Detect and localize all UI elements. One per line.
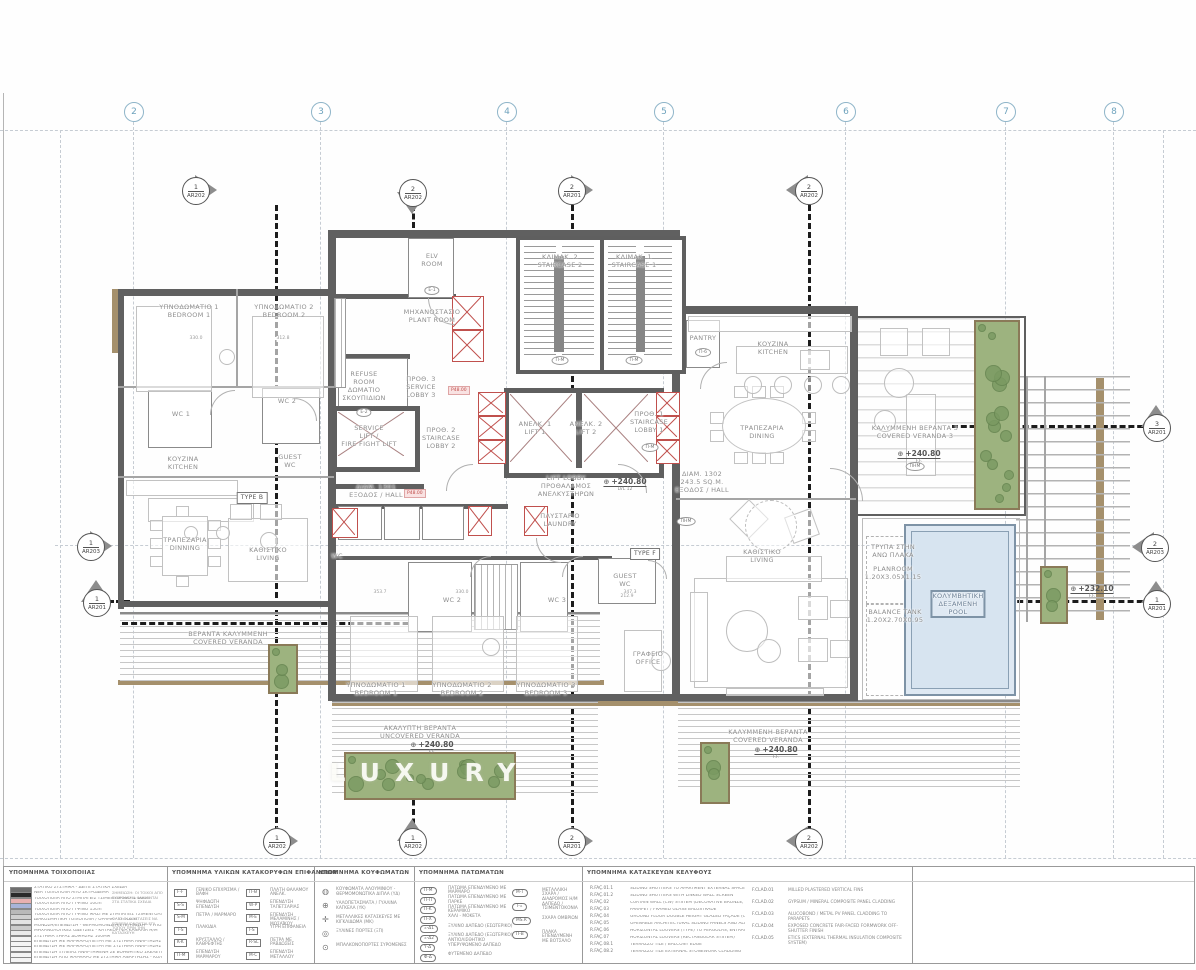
furniture bbox=[880, 328, 908, 356]
door-arc bbox=[648, 560, 667, 579]
opening-symbol-icon: ◍ bbox=[322, 887, 329, 896]
room-label-line: WC 2 bbox=[278, 397, 296, 405]
legend-code: I-S bbox=[246, 927, 258, 935]
room-label-line: ΜΗΧΑΝΟΣΤΑΣΙΟ bbox=[404, 308, 461, 316]
room-label-line: FIRE FIGHT LIFT bbox=[341, 440, 397, 448]
legend-code: T-Ξ bbox=[512, 903, 527, 911]
room-label-line: ΚΟΛΥΜΒΗΤΙΚΗ bbox=[932, 592, 983, 600]
plant-icon bbox=[1044, 570, 1052, 578]
legend-note: ΟΛΕΣ ΟΙ ΔΙΑΣΤΑΣΕΙΣ ΝΑ ΕΠΙΒΕΒΑΙΩΝΟΝΤΑΙ ΕΠ… bbox=[112, 917, 164, 935]
plant-icon bbox=[276, 664, 288, 676]
room-label-line: DINNING bbox=[163, 544, 207, 552]
room-label: ELVROOM bbox=[421, 252, 443, 268]
grid-bubble-6: 6 bbox=[836, 102, 856, 122]
room-label-line: ΥΠΝΟΔΩΜΑΤΙΟ 2 bbox=[432, 681, 491, 689]
room-label-line: BALANCE TANK bbox=[867, 608, 924, 616]
legend-title: ΥΠΟΜΝΗΜΑ ΥΛΙΚΩΝ ΚΑΤΑΚΟΡΥΦΩΝ ΕΠΙΦΑΝΕΙΩΝ bbox=[172, 870, 337, 876]
chair bbox=[150, 520, 163, 531]
elevation-marker: ⊕+240.80F.F. bbox=[897, 449, 940, 464]
dimension-text: 353.7 bbox=[374, 590, 387, 596]
room-label-line: ROOM bbox=[421, 260, 443, 268]
room-label-line: ΚΑΛΥΜΜΕΝΗ ΒΕΡΑΝΤΑ 3 bbox=[872, 424, 958, 432]
room-label: ΚΟΥΖΙΝΑKITCHEN bbox=[167, 455, 198, 471]
grid-bubble-3: 3 bbox=[311, 102, 331, 122]
chair bbox=[208, 556, 221, 567]
section-number: 2 bbox=[801, 834, 817, 843]
furniture-circle bbox=[757, 639, 781, 663]
room-label-line: ΚΛΙΜΑΚ. 2 bbox=[538, 253, 583, 261]
section-sheet: AR202 bbox=[404, 843, 422, 851]
section-marker-circle: 2AR201 bbox=[558, 177, 586, 205]
elevation-marker: ⊕+240.80F.F. bbox=[410, 740, 453, 755]
legend-code-text: F.CLAD.05 bbox=[752, 937, 786, 942]
room-label: PANTRY bbox=[690, 334, 717, 342]
legend-row-text: ΥΓΡΗ ΕΠΙΦΑΝΕΙΑ bbox=[270, 926, 312, 931]
chair bbox=[150, 556, 163, 567]
room-label-line: ΚΑΘΙΣΤΙΚΟ bbox=[249, 546, 287, 554]
duct-x-icon bbox=[479, 393, 503, 413]
elevation-marker: ⊕+240.80F.F. bbox=[754, 745, 797, 760]
room-label-line: ΑΝΕΛΚΥΣΤΗΡΩΝ bbox=[538, 490, 594, 498]
legend-code-text: R.FAÇ.07 bbox=[590, 936, 626, 941]
room-label: ΠΡΟΘ. 1STAIRCASELOBBY 1 bbox=[630, 410, 668, 434]
section-number: 1 bbox=[83, 539, 99, 548]
legend-row-text: ΥΑΛΟΠΕΤΑΣΜΑΤΑ / ΓΥΑΛΙΝΑ ΚΑΓΚΕΛΑ (ΥΚ) bbox=[336, 902, 408, 912]
room-label-line: ΚΛΙΜΑΚ. 1 bbox=[612, 253, 657, 261]
legend-code: Π-Β bbox=[512, 931, 528, 939]
room-label-line: ΤΡΥΠΑ ΣΤΗΝ bbox=[871, 543, 915, 551]
wall bbox=[328, 609, 336, 701]
furniture bbox=[830, 600, 850, 618]
legend-row-text: ΜΠΑΛΚΟΝΟΠΟΡΤΕΣ ΣΥΡΟΜΕΝΕΣ bbox=[336, 944, 408, 949]
elevation-value: ⊕+240.80 bbox=[603, 477, 646, 487]
legend-row-text: ΕΠΕΝΔΥΣΗ ΜΑΡΜΑΡΟΥ bbox=[196, 951, 244, 961]
legend-row-text: TERRAZZO TILE EXTERNAL STONEWORK CLADDIN… bbox=[630, 950, 745, 955]
legend-row-text: ΕΠΕΝΔΥΣΗ ΞΥΛΕΙΑΣ ΑΝΑΡΤΗΜΕΝΗ ΣΕ ΒΟΗΘΗΤΙΚΟ… bbox=[34, 951, 162, 956]
legend-code: M-T bbox=[512, 889, 528, 897]
plant-icon bbox=[994, 406, 1009, 421]
room-label-line: PLANT ROOM bbox=[404, 316, 461, 324]
section-number: 1 bbox=[188, 183, 204, 192]
section-marker-circle: 1AR202 bbox=[263, 828, 291, 856]
furniture bbox=[830, 640, 850, 658]
room-label-line: STAIRCASE 2 bbox=[538, 261, 583, 269]
room-label-line: BEDROOM 1 bbox=[346, 689, 405, 697]
room-label-line: STAIRCASE 1 bbox=[612, 261, 657, 269]
legend-row-text: ΕΠΕΝΔΥΣΗ ΜΕ ΜΑΡΜΑΡΟ/ΠΕΤΡΑ ΜΕ ΣΥΣΤΗΜΑ ΑΝΑ… bbox=[34, 945, 162, 950]
legend-title: ΥΠΟΜΝΗΜΑ ΚΟΥΦΩΜΑΤΩΝ bbox=[319, 870, 409, 876]
room-label-line: ΔΙΑΜ. 1301 bbox=[349, 483, 403, 491]
level-icon: ⊕ bbox=[410, 741, 416, 749]
room-label: LIFT LOBBYΠΡΟΘΑΛΑΜΟΣΑΝΕΛΚΥΣΤΗΡΩΝ bbox=[538, 474, 594, 498]
legend-row-text: TERRAZZO TILE / BALCONY EDGE bbox=[630, 943, 745, 948]
room-label-line: BEDROOM 1 bbox=[159, 311, 218, 319]
area-chip: Ρ48.00 bbox=[448, 386, 470, 395]
section-number: 1 bbox=[89, 595, 105, 604]
room-label: ΚΑΘΙΣΤΙΚΟLIVING bbox=[249, 546, 287, 562]
legend-row-text: ΧΑΛΙ - ΜΟΚΕΤΑ bbox=[448, 915, 518, 920]
legend-code-text: R.FAÇ.01.1 bbox=[590, 887, 626, 892]
opening-symbol-icon: ⊙ bbox=[322, 943, 329, 952]
partition bbox=[118, 476, 334, 478]
furniture-circle bbox=[744, 376, 762, 394]
furniture-circle bbox=[774, 376, 792, 394]
legend-swatch bbox=[10, 957, 32, 963]
section-marker-circle: 1AR203 bbox=[77, 533, 105, 561]
room-label: WC bbox=[331, 552, 343, 560]
legend-row-text: ΠΛΑΤΗ ΘΑΛΑΜΟΥ ΑΝΕΛΚ. bbox=[270, 889, 312, 899]
section-number: 1 bbox=[405, 834, 421, 843]
plant-icon bbox=[980, 450, 992, 462]
legend-row-text: ΕΠΕΝΔΥΣΗ ΜΕΤΑΛΛΟΥ bbox=[270, 951, 312, 961]
legend-row-text: HORIZONTAL LOUVERS (RECTANGULAR SYSTEM) bbox=[630, 936, 745, 941]
room-label: ΑΚΑΛΥΠΤΗ ΒΕΡΑΝΤΑUNCOVERED VERANDA bbox=[380, 724, 460, 740]
furniture bbox=[252, 316, 324, 398]
grid-bubble-7: 7 bbox=[996, 102, 1016, 122]
legend-row-text: ΠΛΑΚΙΔΙΑ bbox=[196, 926, 244, 931]
room-label: ΠΛΥΣΤΑΡΙΟLAUNDRY bbox=[540, 512, 579, 528]
legend-code-text: F.CLAD.04 bbox=[752, 925, 786, 930]
room-label-line: ΑΚΑΛΥΠΤΗ ΒΕΡΑΝΤΑ bbox=[380, 724, 460, 732]
furniture bbox=[230, 504, 252, 520]
plant-icon bbox=[708, 768, 720, 780]
room-label-line: ΥΠΝΟΔΩΜΑΤΙΟ 1 bbox=[159, 303, 218, 311]
luxury-watermark: LUXURY bbox=[330, 758, 531, 787]
opening-symbol-icon: ⊕ bbox=[322, 901, 329, 910]
room-label: ΜΗΧΑΝΟΣΤΑΣΙΟPLANT ROOM bbox=[404, 308, 461, 324]
room-label-line: BEDROOM 2 bbox=[254, 311, 313, 319]
section-number: 3 bbox=[1149, 420, 1165, 429]
wall bbox=[118, 289, 334, 296]
room-label: ΤΡΥΠΑ ΣΤΗΝΑΝΩ ΠΛΑΚΑ bbox=[871, 543, 915, 559]
room-label-line: ΚΟΥΖΙΝΑ bbox=[167, 455, 198, 463]
legend-row-text: ETICS (EXTERNAL THERMAL INSULATION COMPO… bbox=[788, 937, 906, 947]
room-label-line: PLANROOM bbox=[865, 565, 922, 573]
section-sheet: AR202 bbox=[800, 843, 818, 851]
furniture-circle bbox=[884, 368, 914, 398]
furniture-circle bbox=[482, 638, 500, 656]
legend-code-text: R.FAÇ.03 bbox=[590, 908, 626, 913]
legend-row-text: ΔΑΠΕΔΟ / ΤΣΙΜΕΝΤΟΚΟΝΙΑ bbox=[542, 903, 580, 913]
stair-rail bbox=[636, 256, 645, 352]
legend-code: Π-Π bbox=[420, 897, 436, 905]
room-label: ΠΡΟΘ. 2STAIRCASELOBBY 2 bbox=[422, 426, 460, 450]
duct-x-icon bbox=[469, 507, 489, 533]
room-label-line: ΤΡΑΠΕΖΑΡΙΑ bbox=[163, 536, 207, 544]
room-label-line: GUEST bbox=[613, 572, 637, 580]
room-label: SERVICELIFT /FIRE FIGHT LIFT bbox=[341, 424, 397, 448]
dimension-text: 330.0 bbox=[190, 336, 203, 342]
room-label-line: LIFT 1 bbox=[519, 428, 552, 436]
section-marker-circle: 2AR201 bbox=[558, 828, 586, 856]
room-label: ΠΡΟΘ. 3SERVICELOBBY 3 bbox=[406, 375, 436, 399]
legend-row-text: ΕΠΕΝΔΥΣΗ ΤΑΠΕΤΣΑΡΙΑΣ bbox=[270, 901, 312, 911]
legend-code: Υ-Δ bbox=[420, 944, 435, 952]
chair bbox=[176, 506, 189, 517]
furniture-circle bbox=[804, 376, 822, 394]
plant-icon bbox=[978, 324, 986, 332]
section-sheet: AR202 bbox=[800, 192, 818, 200]
room-label-line: WC bbox=[278, 461, 302, 469]
room-label-line: ΠΡΟΘ. 2 bbox=[422, 426, 460, 434]
door-arc bbox=[210, 390, 235, 415]
opening-symbol-icon: ✛ bbox=[322, 915, 329, 924]
plant-icon bbox=[995, 494, 1004, 503]
room-label: GUESTWC bbox=[613, 572, 637, 588]
door-arc bbox=[446, 464, 473, 491]
finish-tag: ΠΗΜ bbox=[677, 517, 696, 526]
room-label-line: ΚΟΥΖΙΝΑ bbox=[757, 340, 788, 348]
legend-code-text: R.FAÇ.02 bbox=[590, 901, 626, 906]
elevation-marker: ⊕+232.10F.F. bbox=[1070, 584, 1113, 599]
legend-row-text: ΠΛΑΚΑ ΕΠΕΝΔΥΜΕΝΗ ΜΕ ΒΟΤΣΑΛΟ bbox=[542, 931, 580, 946]
room-label-line: 1.20X3.05X1.15 bbox=[865, 573, 922, 581]
margin-line-1 bbox=[1163, 130, 1164, 858]
legend-code: Φ-Δ bbox=[420, 954, 436, 962]
legend-row-text: ΚΡΥΣΤΑΛΛΟ / ΚΑΘΡΕΦΤΗΣ bbox=[196, 939, 244, 949]
room-label: ΚΑΘΙΣΤΙΚΟLIVING bbox=[743, 548, 781, 564]
room-label-line: ΣΚΟΥΠΙΔΙΩΝ bbox=[342, 394, 385, 402]
room-label: ΔΙΑΜ. 1301ΕΞΟΔΟΣ / HALL bbox=[349, 483, 403, 499]
duct-x-icon bbox=[453, 331, 481, 359]
legend-code: F-F bbox=[174, 889, 187, 897]
room-label-line: DINING bbox=[740, 432, 784, 440]
room-label-line: REFUSE bbox=[342, 370, 385, 378]
plant-icon bbox=[704, 746, 712, 754]
section-sheet: AR201 bbox=[1148, 429, 1166, 437]
finish-tag: Π-6 bbox=[695, 348, 711, 357]
room-label-line: ΤΡΑΠΕΖΑΡΙΑ bbox=[740, 424, 784, 432]
legend-row-text: ΣΥΣΤΗΜΑ ΞΗΡΑΣ ΔΟΜΗΣΗΣ 100MM bbox=[34, 935, 162, 940]
corner-rug bbox=[745, 500, 797, 552]
chair bbox=[710, 430, 724, 442]
room-box bbox=[422, 506, 464, 540]
elevation-value: ⊕+232.10 bbox=[1070, 584, 1113, 594]
plant-icon bbox=[274, 674, 289, 689]
section-sheet: AR203 bbox=[82, 548, 100, 556]
legend-code-text: R.FAÇ.05 bbox=[590, 922, 626, 927]
legend-row-text: MILLED PLASTERED VERTICAL FINS bbox=[788, 889, 906, 894]
wall bbox=[118, 289, 124, 609]
section-sheet: AR201 bbox=[563, 843, 581, 851]
room-label-line: ΠΛΥΣΤΑΡΙΟ bbox=[540, 512, 579, 520]
elevation-ref: F.F. bbox=[897, 459, 940, 464]
chair bbox=[734, 452, 748, 464]
level-icon: ⊕ bbox=[754, 746, 760, 754]
legend-title: ΥΠΟΜΝΗΜΑ ΚΑΤΑΣΚΕΥΩΝ ΚΕΛΥΦΟΥΣ bbox=[587, 870, 712, 876]
section-marker-circle: 2AR203 bbox=[1141, 534, 1169, 562]
legend-code: R-SL bbox=[246, 939, 261, 947]
room-label-line: ΥΠΝΟΔΩΜΑΤΙΟ 1 bbox=[346, 681, 405, 689]
legend-code-text: F.CLAD.01 bbox=[752, 889, 786, 894]
room-label-line: COVERED VERANDA 3 bbox=[872, 432, 958, 440]
room-label: WC 2 bbox=[443, 596, 461, 604]
elevation-ref: F.F. bbox=[1070, 594, 1113, 599]
room-label: ΒΕΡΑΝΤΑ ΚΑΛΥΜΜΕΝΗCOVERED VERANDA bbox=[188, 630, 268, 646]
room-label-line: ΑΝΕΛΚ. 1 bbox=[519, 420, 552, 428]
elevation-ref: F.F. bbox=[410, 750, 453, 755]
room-label: ΔΙΑΜ. 1302243.5 SQ.M.ΕΞΟΔΟΣ / HALL bbox=[675, 470, 729, 494]
planter bbox=[700, 742, 730, 804]
room-label: TYPE B bbox=[237, 492, 268, 504]
chair bbox=[208, 538, 221, 549]
plant-icon bbox=[988, 332, 996, 340]
room-label-line: ΕΞΟΔΟΣ / HALL bbox=[349, 491, 403, 499]
room-label-line: ΒΕΡΑΝΤΑ ΚΑΛΥΜΜΕΝΗ bbox=[188, 630, 268, 638]
section-number: 1 bbox=[269, 834, 285, 843]
furniture bbox=[798, 596, 828, 620]
legend-row-text: ΞΥΛΙΝΕΣ ΠΟΡΤΕΣ (ΞΠ) bbox=[336, 930, 408, 935]
legend-title: ΥΠΟΜΝΗΜΑ ΤΟΙΧΟΠΟΙΙΑΣ bbox=[9, 870, 95, 876]
section-marker-circle: 1AR201 bbox=[1143, 590, 1171, 618]
plant-icon bbox=[1046, 600, 1058, 612]
planter bbox=[268, 644, 298, 694]
chair bbox=[176, 576, 189, 587]
room-label-line: ΥΠΝΟΔΩΜΑΤΙΟ 2 bbox=[254, 303, 313, 311]
duct-x-icon bbox=[333, 509, 355, 535]
finish-tag: Π-Μ bbox=[552, 356, 569, 365]
stair-rail bbox=[554, 256, 564, 352]
legend-code: Π-Θ bbox=[246, 889, 260, 897]
section-sheet: AR201 bbox=[1148, 605, 1166, 613]
room-label-line: ΕΞΟΔΟΣ / HALL bbox=[675, 486, 729, 494]
legend-code-text: R.FAÇ.06 bbox=[590, 929, 626, 934]
legend-code: K-K bbox=[174, 939, 187, 947]
section-sheet: AR201 bbox=[88, 604, 106, 612]
room-label-line: WC 3 bbox=[548, 596, 566, 604]
furniture bbox=[922, 328, 950, 356]
room-label: ΚΛΙΜΑΚ. 2STAIRCASE 2 bbox=[538, 253, 583, 269]
furniture-circle bbox=[216, 526, 230, 540]
room-label-line: 1.20X2.70X0.95 bbox=[867, 616, 924, 624]
section-marker-circle: 2AR202 bbox=[795, 177, 823, 205]
room-label: WC 1 bbox=[172, 410, 190, 418]
room-label: TYPE F bbox=[630, 548, 660, 560]
elevation-value: ⊕+240.80 bbox=[754, 745, 797, 755]
level-icon: ⊕ bbox=[897, 450, 903, 458]
legend-row-text: ΕΠΕΝΔΥΣΗ ΑΠΟ ΜΑΡΜΑΡΟ ΜΕ ΣΥΣΤΗΜΑ ΑΝΑΡΤΗΣΗ… bbox=[34, 956, 162, 961]
legend-code: Π-Μ bbox=[420, 887, 437, 895]
level-icon: ⊕ bbox=[603, 478, 609, 486]
room-label: ΚΛΙΜΑΚ. 1STAIRCASE 1 bbox=[612, 253, 657, 269]
legend-row-text: ΣΧΑΡΑ ΟΜΒΡΙΩΝ bbox=[542, 917, 580, 922]
room-label-line: OFFICE bbox=[633, 658, 663, 666]
section-number: 1 bbox=[1149, 596, 1165, 605]
legend-code: Π-Χ bbox=[420, 916, 436, 924]
legend-code-text: F.CLAD.03 bbox=[752, 913, 786, 918]
furniture-circle bbox=[219, 349, 235, 365]
room-label-line: WC 2 bbox=[443, 596, 461, 604]
elevation-ref: F.F. bbox=[754, 755, 797, 760]
legend-code: S-S bbox=[174, 902, 187, 910]
legend-row-text: SLIDING SHUTTERS TO APARTMENT EXTERNAL S… bbox=[630, 887, 745, 892]
room-label-line: ΥΠΝΟΔΩΜΑΤΙΟ 3 bbox=[516, 681, 575, 689]
section-number: 2 bbox=[1147, 540, 1163, 549]
sheet-frame-line bbox=[3, 93, 4, 962]
room-label: ΤΡΑΠΕΖΑΡΙΑDINNING bbox=[163, 536, 207, 552]
room-label: ΑΝΕΛΚ. 1LIFT 1 bbox=[519, 420, 552, 436]
duct-x-icon bbox=[479, 441, 503, 461]
room-label-line: ΔΙΑΜ. 1302 bbox=[675, 470, 729, 478]
wall bbox=[672, 470, 680, 701]
legend-code-text: R.FAÇ.04 bbox=[590, 915, 626, 920]
grid-line-3 bbox=[320, 122, 321, 858]
room-label: ΥΠΝΟΔΩΜΑΤΙΟ 2BEDROOM 2 bbox=[432, 681, 491, 697]
room-label: ΥΠΝΟΔΩΜΑΤΙΟ 2BEDROOM 2 bbox=[254, 303, 313, 319]
section-marker-circle: 1AR202 bbox=[182, 177, 210, 205]
section-sheet: AR203 bbox=[1146, 549, 1164, 557]
legend-row-text: ΚΟΥΦΩΜΑΤΑ ΑΛΟΥΜΙΝΙΟΥ - ΘΕΡΜΟΜΟΝΩΤΙΚΑ ΔΙΠ… bbox=[336, 888, 408, 898]
room-label-line: LIFT LOBBY bbox=[538, 474, 594, 482]
legend-row-text: ΥΠΕΡΥΨΩΜΕΝΟ ΔΑΠΕΔΟ bbox=[448, 944, 518, 949]
room-label-line: ΠΡΟΘ. 3 bbox=[406, 375, 436, 383]
room-label: ΑΝΕΛΚ. 2LIFT 2 bbox=[570, 420, 603, 436]
chair bbox=[770, 452, 784, 464]
grid-bubble-2: 2 bbox=[124, 102, 144, 122]
room-label: WC 2 bbox=[278, 397, 296, 405]
opening-symbol-icon: ◎ bbox=[322, 929, 329, 938]
section-marker-circle: 2AR202 bbox=[795, 828, 823, 856]
margin-line-0 bbox=[60, 130, 61, 858]
legend-title: ΥΠΟΜΝΗΜΑ ΠΑΤΩΜΑΤΩΝ bbox=[419, 870, 504, 876]
room-label: ΚΟΥΖΙΝΑKITCHEN bbox=[757, 340, 788, 356]
finish-tag: Π-Μ bbox=[642, 443, 659, 452]
room-label-line: ΠΡΟΘ. 1 bbox=[630, 410, 668, 418]
room-label-line: BEDROOM 3 bbox=[516, 689, 575, 697]
room-label-line: LOBBY 2 bbox=[422, 442, 460, 450]
section-sheet: AR202 bbox=[404, 194, 422, 202]
room-label-line: LOBBY 1 bbox=[630, 426, 668, 434]
room-label-line: BEDROOM 2 bbox=[432, 689, 491, 697]
room-label-line: PANTRY bbox=[690, 334, 717, 342]
plant-icon bbox=[1002, 483, 1011, 492]
room-label: BALANCE TANK1.20X2.70X0.95 bbox=[867, 608, 924, 624]
room-label-line: WC bbox=[331, 552, 343, 560]
room-label-line: ΑΝΩ ΠΛΑΚΑ bbox=[871, 551, 915, 559]
legend-code-text: R.FAÇ.08.1 bbox=[590, 943, 626, 948]
room-box bbox=[148, 390, 212, 448]
room-label-line: ELV bbox=[421, 252, 443, 260]
legend-row-text: EXPOSED CONCRETE FAIR-FACED FORMWORK OFF… bbox=[788, 925, 906, 935]
legend-code: Π-Μ bbox=[174, 952, 189, 960]
grid-hline-0 bbox=[0, 130, 1196, 131]
section-marker-circle: 1AR202 bbox=[399, 828, 427, 856]
planter bbox=[1040, 566, 1068, 624]
legend-code: Π-Κ bbox=[420, 906, 436, 914]
furniture bbox=[694, 578, 848, 688]
planter bbox=[974, 320, 1020, 510]
dimension-text: 312.8 bbox=[277, 336, 290, 342]
room-label-line: LAUNDRY bbox=[540, 520, 579, 528]
furniture bbox=[690, 592, 708, 682]
room-label-line: SERVICE bbox=[341, 424, 397, 432]
legend-code: T-S bbox=[174, 927, 187, 935]
legend-strip: ΥΠΟΜΝΗΜΑ ΤΟΙΧΟΠΟΙΙΑΣΥΠΟΜΝΗΜΑ ΥΛΙΚΩΝ ΚΑΤΑ… bbox=[3, 866, 1195, 964]
room-label-line: LIFT 2 bbox=[570, 428, 603, 436]
legend-row-text: ΨΗΦΙΔΩΤΗ ΕΠΕΝΔΥΣΗ bbox=[196, 901, 244, 911]
room-label: GUESTWC bbox=[278, 453, 302, 469]
legend-code: W-P bbox=[246, 902, 260, 910]
legend-code-text: R.FAÇ.01.2 bbox=[590, 894, 626, 899]
room-label-line: KITCHEN bbox=[757, 348, 788, 356]
legend-row-text: HORIZONTAL LOUVERS (TYPE) TO PERGOLAS, E… bbox=[630, 929, 745, 934]
finish-tag: Π-Μ bbox=[626, 356, 643, 365]
legend-row-text: GROUND FLOOR DOUBLE HEIGHT GLAZED FAÇADE… bbox=[630, 915, 745, 920]
room-label: ΥΠΝΟΔΩΜΑΤΙΟ 1BEDROOM 1 bbox=[159, 303, 218, 319]
room-label-line: TYPE B bbox=[241, 494, 264, 502]
plant-icon bbox=[1000, 430, 1012, 442]
room-label: ΚΑΛΥΜΜΕΝΗ ΒΕΡΑΝΤΑCOVERED VERANDA bbox=[728, 728, 808, 744]
